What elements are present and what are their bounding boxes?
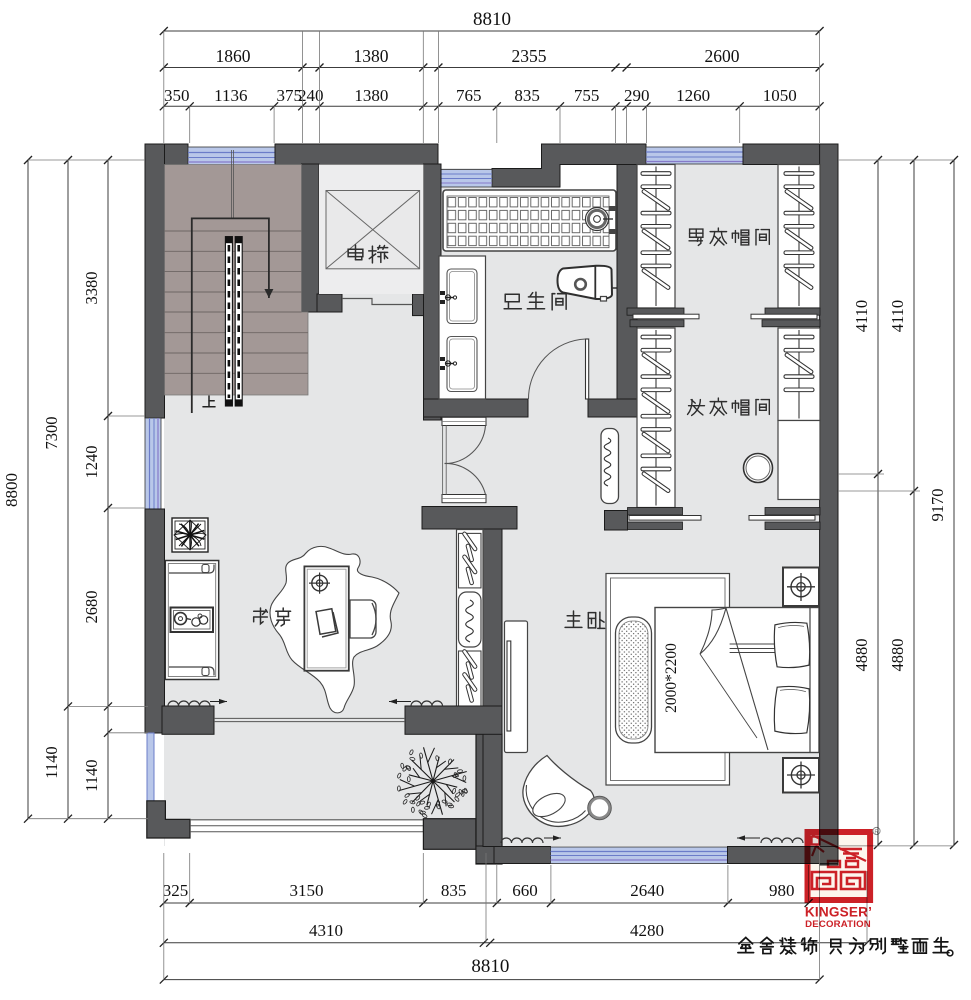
svg-text:KINGSER’: KINGSER’ [805, 905, 872, 920]
svg-text:1140: 1140 [42, 746, 61, 778]
svg-text:8810: 8810 [473, 9, 511, 30]
svg-text:1240: 1240 [82, 446, 101, 479]
svg-text:R: R [874, 830, 879, 836]
svg-text:8810: 8810 [471, 956, 509, 977]
svg-text:4280: 4280 [630, 921, 664, 940]
svg-text:1050: 1050 [763, 86, 797, 105]
svg-text:3380: 3380 [82, 272, 101, 305]
svg-text:2640: 2640 [630, 881, 664, 900]
svg-text:2355: 2355 [512, 46, 547, 66]
svg-text:7300: 7300 [42, 417, 61, 450]
svg-text:1860: 1860 [216, 46, 251, 66]
svg-text:2600: 2600 [705, 46, 740, 66]
svg-text:1380: 1380 [354, 86, 388, 105]
svg-text:290: 290 [624, 86, 650, 105]
svg-text:350: 350 [164, 86, 190, 105]
svg-text:4310: 4310 [309, 921, 343, 940]
svg-text:9170: 9170 [928, 489, 947, 522]
svg-text:2000*2200: 2000*2200 [663, 643, 680, 713]
svg-text:1136: 1136 [214, 86, 247, 105]
svg-text:4880: 4880 [852, 639, 871, 672]
svg-text:4110: 4110 [888, 300, 907, 332]
svg-text:755: 755 [574, 86, 600, 105]
svg-text:1260: 1260 [676, 86, 710, 105]
svg-text:1140: 1140 [82, 760, 101, 792]
svg-text:325: 325 [163, 881, 189, 900]
svg-text:980: 980 [769, 881, 795, 900]
svg-text:660: 660 [512, 881, 538, 900]
svg-text:8800: 8800 [2, 473, 21, 507]
svg-text:1380: 1380 [354, 46, 389, 66]
svg-text:2680: 2680 [82, 591, 101, 624]
svg-text:4110: 4110 [852, 300, 871, 332]
svg-text:4880: 4880 [888, 639, 907, 672]
svg-text:765: 765 [456, 86, 482, 105]
svg-text:3150: 3150 [290, 881, 324, 900]
svg-text:835: 835 [514, 86, 540, 105]
svg-text:835: 835 [441, 881, 467, 900]
svg-text:DECORATION: DECORATION [805, 919, 871, 930]
